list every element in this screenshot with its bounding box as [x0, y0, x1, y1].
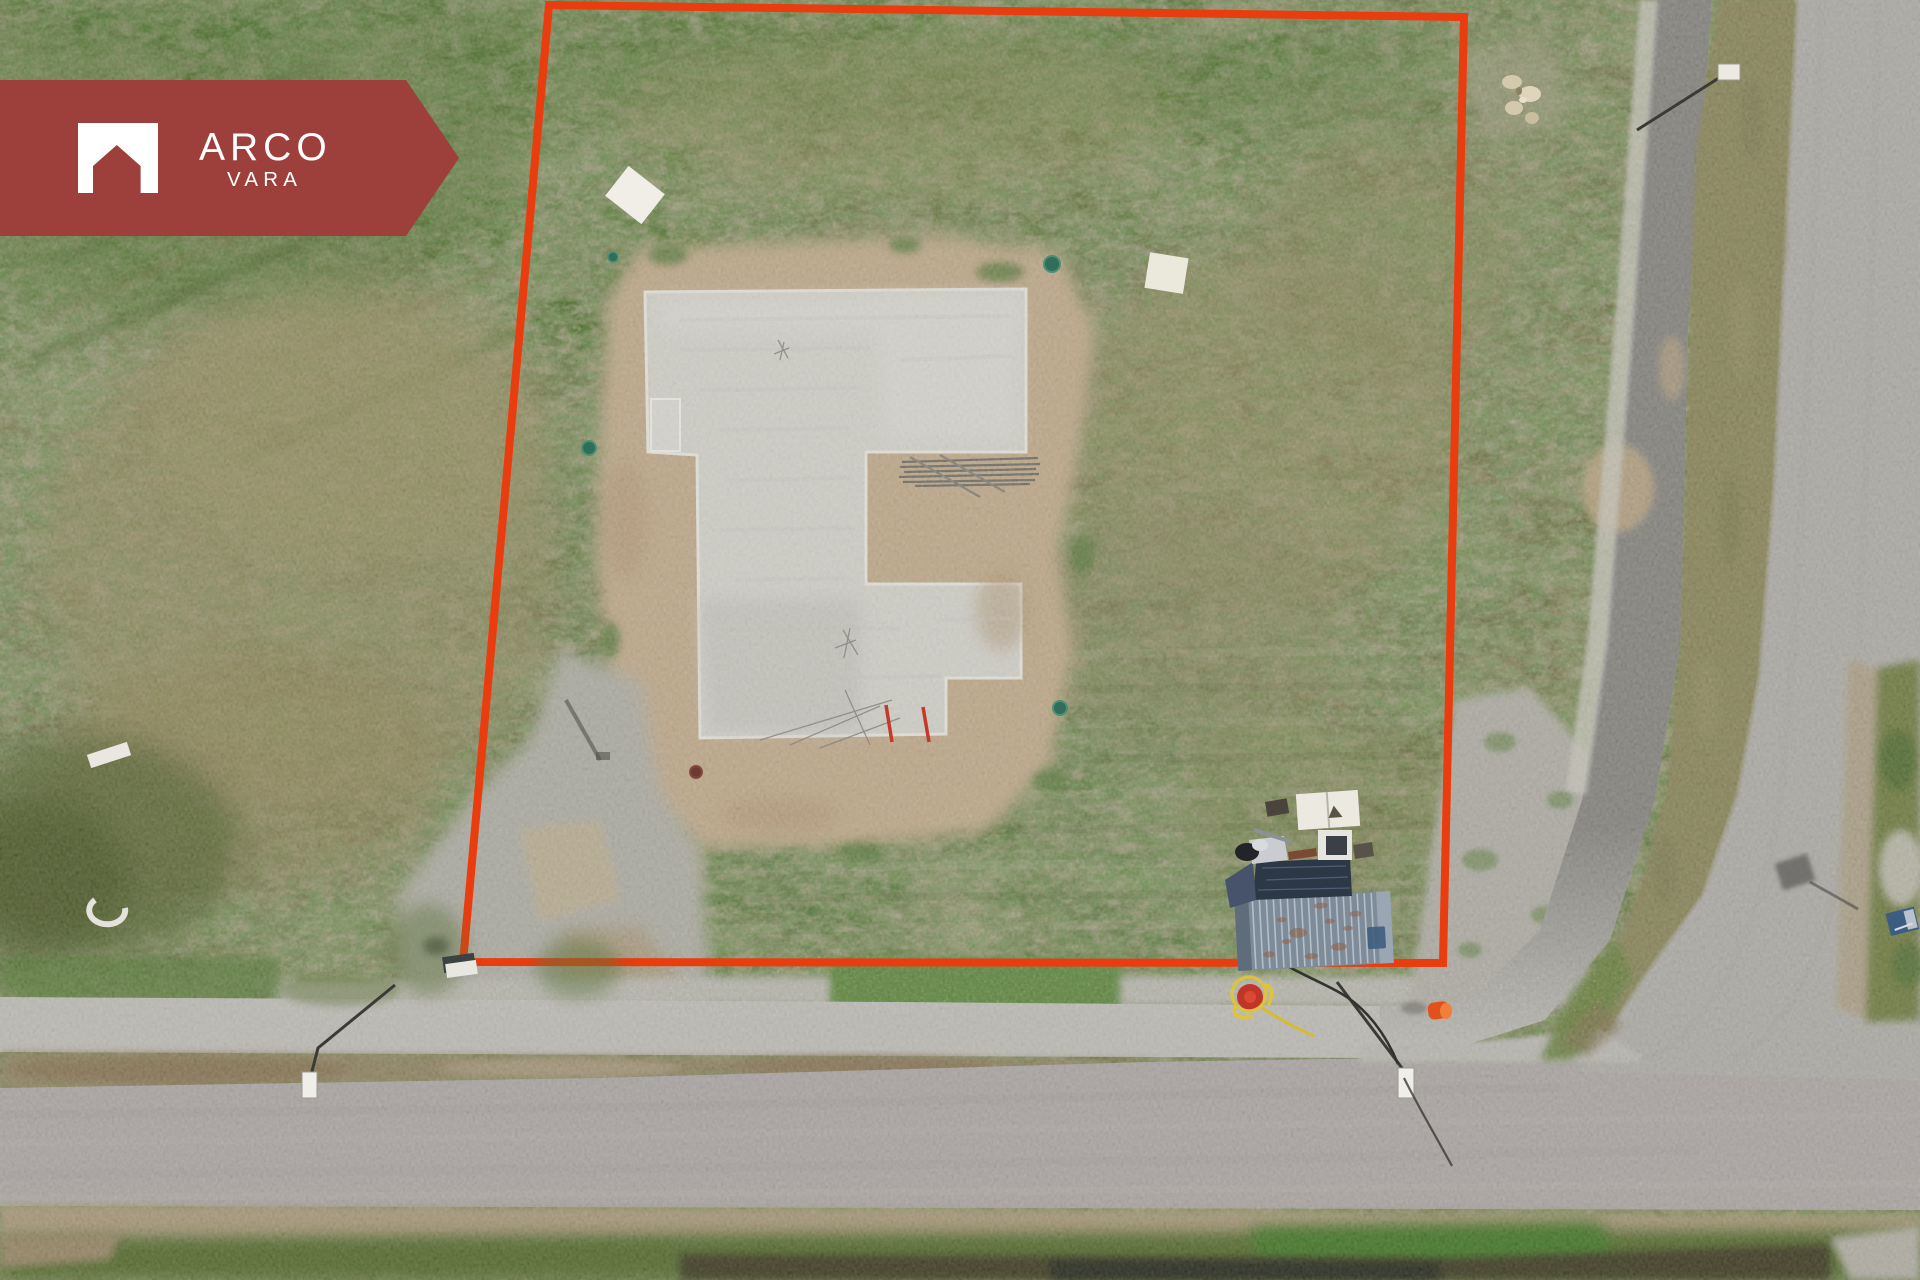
svg-text:ARCO: ARCO [199, 126, 332, 169]
svg-text:VARA: VARA [227, 168, 302, 191]
